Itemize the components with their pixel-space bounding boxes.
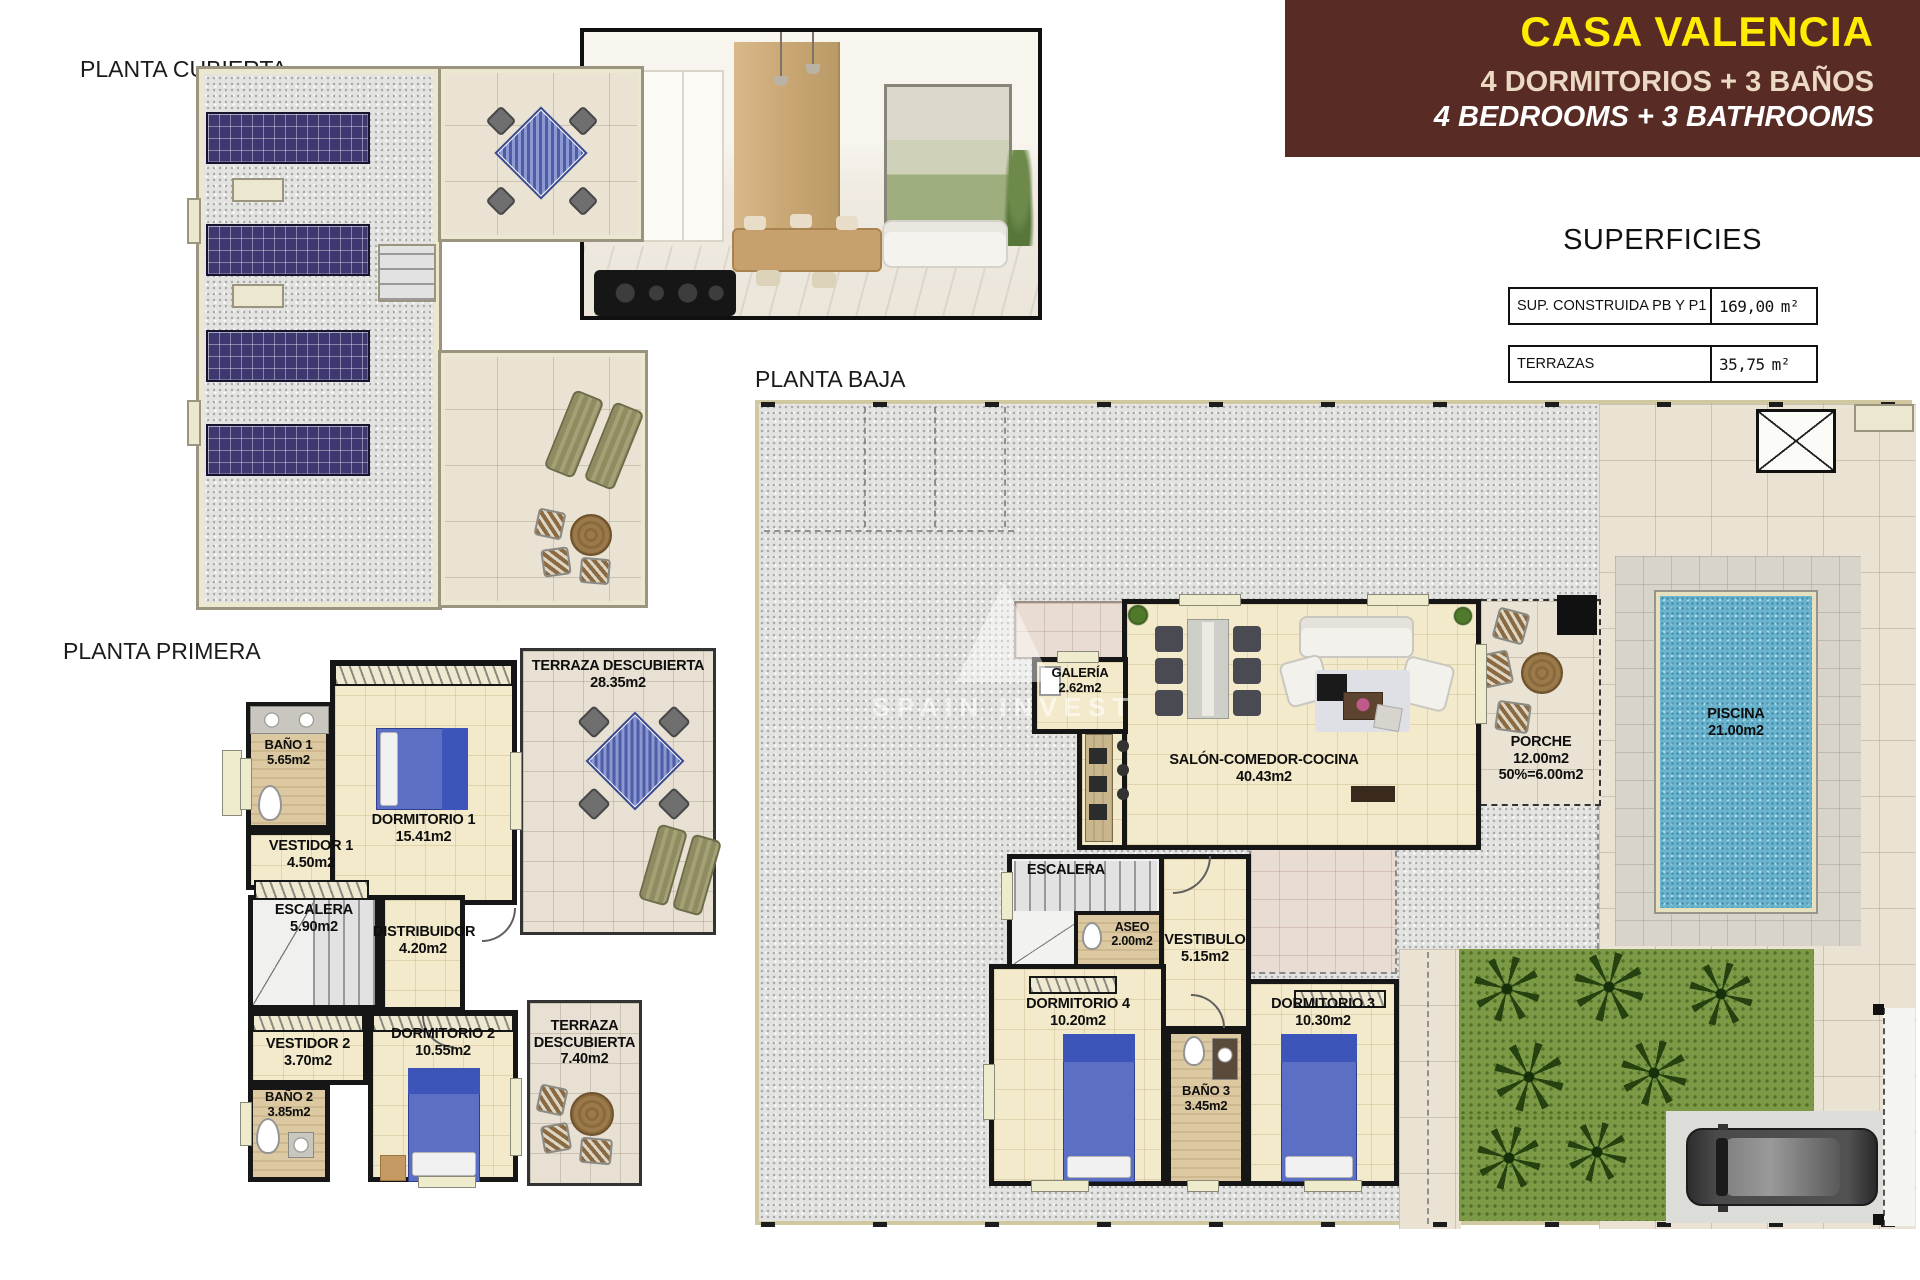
- bed-duvet: [1063, 1034, 1135, 1062]
- window: [1031, 1180, 1089, 1192]
- pendant-shade: [774, 76, 788, 86]
- bed-duvet: [408, 1068, 480, 1094]
- roof-vent: [232, 178, 284, 202]
- dining-table: [732, 228, 882, 272]
- first-floor-plan: BAÑO 15.65m2 VESTIDOR 14.50m2 DORMITORIO…: [196, 640, 726, 1186]
- bed-duvet: [1281, 1034, 1357, 1062]
- porch-pillar: [1557, 595, 1597, 635]
- solar-panel: [206, 112, 370, 164]
- palm-tree: [1621, 1040, 1687, 1106]
- palm-tree: [1474, 956, 1540, 1022]
- watermark-text: SPAIN INVEST: [854, 692, 1154, 723]
- room-label: BAÑO 23.85m2: [248, 1090, 330, 1120]
- dining-chair: [1155, 658, 1183, 684]
- row-value: 169,00m²: [1710, 289, 1816, 323]
- plant-pot: [1453, 606, 1473, 626]
- patio-chair: [1494, 700, 1532, 734]
- dining-chair: [1233, 626, 1261, 652]
- room-label: VESTIBULO5.15m2: [1157, 932, 1253, 965]
- solar-panel: [206, 330, 370, 382]
- palm-tree: [1689, 962, 1753, 1026]
- appliance: [1089, 748, 1107, 764]
- subtitle-english: 4 BEDROOMS + 3 BATHROOMS: [1285, 99, 1920, 134]
- window: [1304, 1180, 1362, 1192]
- dining-chair: [790, 214, 812, 228]
- door-arc: [482, 908, 516, 942]
- window: [1367, 594, 1429, 606]
- pool: [1656, 592, 1816, 912]
- pendant-shade: [806, 64, 820, 74]
- path: [1399, 949, 1461, 1229]
- car-mirror: [1718, 1124, 1728, 1130]
- room-label: ESCALERA: [1011, 862, 1121, 879]
- car-windshield: [1716, 1138, 1728, 1196]
- palm-tree: [1494, 1042, 1564, 1112]
- title-banner: CASA VALENCIA 4 DORMITORIOS + 3 BAÑOS 4 …: [1285, 0, 1920, 157]
- roof-ledge: [187, 198, 201, 244]
- plot-line: [864, 407, 866, 527]
- sliding-door: [510, 1078, 522, 1156]
- toilet: [258, 785, 282, 821]
- room-label: SALÓN-COMEDOR-COCINA40.43m2: [1144, 752, 1384, 785]
- ground-floor-plan: SPAIN INVEST GALERÍA2.62m2 SALÓN-COMEDOR…: [755, 400, 1912, 1225]
- dining-chair: [1233, 658, 1261, 684]
- room-label: BAÑO 15.65m2: [246, 738, 331, 768]
- table-runner: [1202, 622, 1214, 716]
- pendant-light: [812, 32, 814, 64]
- room-label: ESCALERA5.90m2: [248, 902, 380, 935]
- wardrobe: [1029, 976, 1117, 994]
- bed-pillows: [380, 732, 398, 806]
- room-label: DORMITORIO 310.30m2: [1248, 996, 1398, 1029]
- window: [1001, 872, 1013, 920]
- room-label: TERRAZA DESCUBIERTA7.40m2: [533, 1018, 636, 1068]
- roof-stair-bulkhead: [378, 244, 436, 302]
- plot-line: [1427, 952, 1429, 1224]
- plot-line: [764, 530, 1014, 532]
- project-title: CASA VALENCIA: [1285, 0, 1920, 56]
- dining-chair: [756, 270, 780, 286]
- room-label: ASEO2.00m2: [1105, 920, 1159, 949]
- room-label: DORMITORIO 115.41m2: [330, 812, 517, 845]
- window: [1057, 651, 1099, 663]
- round-table: [570, 1092, 614, 1136]
- palm-tree: [1574, 952, 1644, 1022]
- sofa: [1299, 616, 1414, 658]
- bed-pillows: [1285, 1156, 1353, 1178]
- patio-chair: [579, 1137, 613, 1166]
- ottoman: [1373, 704, 1403, 732]
- solar-panel: [206, 224, 370, 276]
- superficies-row: SUP. CONSTRUIDA PB Y P1 169,00m²: [1508, 287, 1818, 325]
- window-ledge: [222, 750, 242, 816]
- bar-stool: [1117, 764, 1129, 776]
- floorplan-sheet: CASA VALENCIA 4 DORMITORIOS + 3 BAÑOS 4 …: [0, 0, 1920, 1280]
- plot-line: [1597, 804, 1599, 949]
- room-label: VESTIDOR 23.70m2: [248, 1036, 368, 1069]
- patio-chair: [533, 507, 566, 540]
- room-label: PORCHE12.00m250%=6.00m2: [1483, 734, 1599, 784]
- bed-pillows: [1067, 1156, 1131, 1178]
- entrance-strip: [1883, 1008, 1915, 1226]
- round-table: [1521, 652, 1563, 694]
- storage-box: [1854, 404, 1914, 432]
- pendant-light: [780, 32, 782, 76]
- window: [983, 1064, 995, 1120]
- sliding-door: [1475, 644, 1487, 724]
- dining-chair: [836, 216, 858, 230]
- sofa: [882, 220, 1008, 268]
- room-label: DORMITORIO 210.55m2: [368, 1026, 518, 1059]
- bar-stool: [1117, 788, 1129, 800]
- dining-chair: [744, 216, 766, 230]
- pergola: [1756, 409, 1836, 473]
- palm-tree: [1567, 1122, 1627, 1182]
- wardrobe: [254, 880, 369, 900]
- roof-vent: [232, 284, 284, 308]
- media-unit: [1351, 786, 1395, 802]
- car-roof: [1724, 1138, 1840, 1196]
- dining-chair: [1233, 690, 1261, 716]
- car-mirror: [1718, 1206, 1728, 1212]
- room-label: TERRAZA DESCUBIERTA28.35m2: [530, 658, 706, 691]
- bed-duvet: [442, 728, 468, 810]
- row-label: TERRAZAS: [1510, 347, 1710, 381]
- patio-chair: [540, 1122, 572, 1154]
- gate-post: [1873, 1214, 1884, 1225]
- room-label: PISCINA21.00m2: [1656, 706, 1816, 739]
- patio-chair: [579, 557, 611, 586]
- dining-chair: [1155, 690, 1183, 716]
- superficies-title: SUPERFICIES: [1505, 224, 1820, 257]
- window: [1187, 1180, 1219, 1192]
- toilet: [256, 1118, 280, 1154]
- plot-line: [1004, 407, 1006, 527]
- row-label: SUP. CONSTRUIDA PB Y P1: [1510, 289, 1710, 323]
- watermark-logo: [956, 582, 1052, 682]
- bar-stool: [1117, 740, 1129, 752]
- toilet: [1183, 1036, 1205, 1066]
- superficies-row: TERRAZAS 35,75m²: [1508, 345, 1818, 383]
- roof-ledge: [187, 400, 201, 446]
- appliance: [1089, 776, 1107, 792]
- toilet: [1082, 922, 1102, 950]
- window: [418, 1176, 476, 1188]
- patio-chair: [540, 546, 572, 578]
- sink: [1212, 1038, 1238, 1080]
- window: [1179, 594, 1241, 606]
- palm-tree: [1477, 1126, 1541, 1190]
- car: [1686, 1128, 1878, 1206]
- solar-panel: [206, 424, 370, 476]
- bench: [380, 1155, 406, 1181]
- patio-chair: [535, 1083, 568, 1116]
- covered-terrace: [1249, 841, 1397, 974]
- ground-floor-title: PLANTA BAJA: [755, 366, 905, 393]
- round-table: [570, 514, 612, 556]
- dining-chair: [1155, 626, 1183, 652]
- dining-chair: [812, 272, 836, 288]
- wardrobe: [334, 664, 513, 686]
- plant-pot: [1127, 604, 1149, 626]
- plot-line: [934, 407, 936, 527]
- wardrobe: [252, 1014, 364, 1032]
- subtitle-spanish: 4 DORMITORIOS + 3 BAÑOS: [1285, 56, 1920, 99]
- double-sink: [250, 706, 329, 734]
- room-label: BAÑO 33.45m2: [1168, 1084, 1244, 1114]
- roof-plan: [196, 58, 652, 610]
- appliance: [1089, 804, 1107, 820]
- room-label: DORMITORIO 410.20m2: [993, 996, 1163, 1029]
- bed-pillows: [412, 1152, 476, 1176]
- room-label: DISTRIBUIDOR4.20m2: [373, 924, 473, 957]
- sink: [288, 1132, 314, 1158]
- row-value: 35,75m²: [1710, 347, 1816, 381]
- gate-post: [1873, 1004, 1884, 1015]
